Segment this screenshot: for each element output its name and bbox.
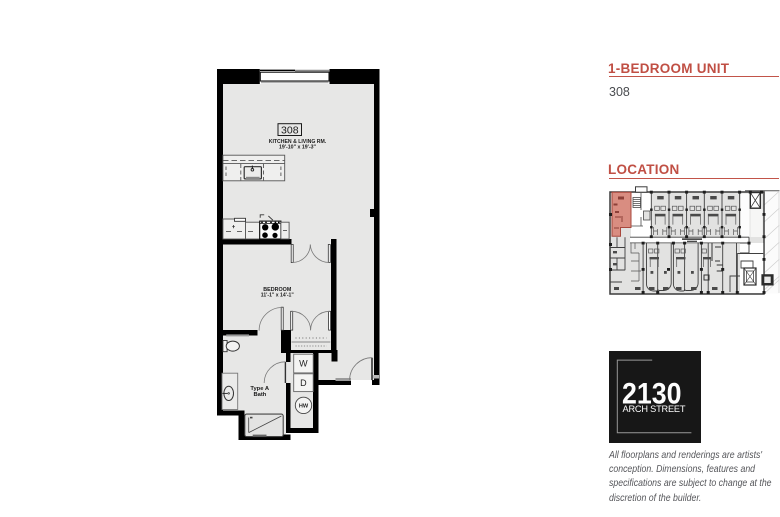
svg-text:HW: HW — [299, 404, 309, 410]
svg-text:19'-10" x 19'-3": 19'-10" x 19'-3" — [279, 145, 316, 151]
svg-text:ARCH STREET: ARCH STREET — [622, 404, 685, 414]
svg-text:W: W — [299, 359, 308, 369]
svg-text:Bath: Bath — [253, 392, 266, 398]
svg-text:D: D — [300, 378, 307, 388]
svg-text:308: 308 — [281, 125, 299, 137]
svg-text:11'-1" x 14'-1": 11'-1" x 14'-1" — [261, 293, 294, 299]
